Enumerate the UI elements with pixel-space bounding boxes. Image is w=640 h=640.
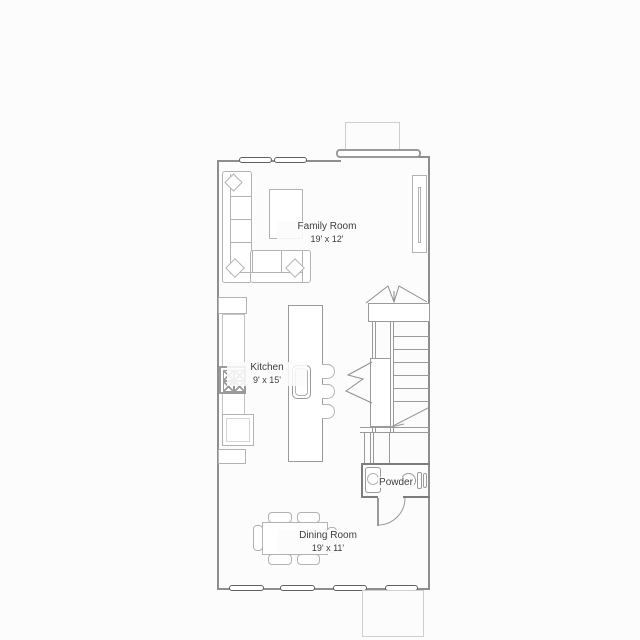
stair-tread: [393, 362, 429, 363]
dining-room-label: Dining Room 19' x 11': [278, 530, 378, 554]
window-bottom-1: [229, 585, 264, 591]
stair-direction-line: [391, 408, 428, 427]
lower-cabinet: [218, 449, 246, 464]
window-right-glass: [418, 187, 421, 243]
stair-bottom-line-1: [360, 427, 429, 428]
powder-wall-bottom-right: [403, 496, 430, 498]
floor-plan-canvas: Family Room 19' x 12' Kitchen 9' x 15' P…: [0, 0, 640, 640]
stair-break-left-icon: [346, 362, 372, 403]
sofa-cushion-line-4: [252, 251, 253, 272]
refrigerator: [218, 297, 247, 314]
window-bottom-2: [280, 585, 315, 591]
hall-line-2: [370, 433, 371, 463]
room-name: Family Room: [277, 221, 377, 233]
powder-wall-top: [361, 463, 430, 465]
chimney-outline: [345, 122, 400, 151]
hall-line-4: [389, 433, 390, 463]
window-top-1: [239, 157, 272, 163]
fireplace-hearth: [336, 149, 421, 158]
sofa-cushion-line-2: [231, 219, 251, 220]
sofa-cushion-line-3: [231, 242, 251, 243]
hall-line-1: [364, 433, 365, 463]
stair-tread: [393, 349, 429, 350]
room-name: Kitchen: [227, 362, 307, 374]
kitchen-label: Kitchen 9' x 15': [227, 362, 307, 386]
stair-tread: [393, 401, 429, 402]
stair-stringer-4: [393, 322, 394, 433]
room-dims: 19' x 12': [277, 233, 377, 245]
stair-tread: [393, 388, 429, 389]
bar-stool-1: [322, 364, 335, 379]
dining-chair-bottom-2: [297, 554, 320, 565]
powder-door-panel: [377, 498, 379, 526]
stair-railing: [370, 358, 391, 427]
door-swing-arc: [378, 498, 405, 525]
room-name: Dining Room: [278, 530, 378, 542]
bar-stool-2: [322, 384, 335, 399]
dining-chair-top-1: [268, 512, 292, 523]
dining-chair-bottom-1: [268, 554, 292, 565]
stair-break-top-icon: [366, 286, 427, 303]
base-cabinet-inner: [226, 418, 250, 442]
bar-stool-3: [322, 404, 335, 419]
wall-right: [428, 156, 430, 590]
porch-stoop: [362, 590, 424, 637]
stair-landing: [368, 303, 430, 322]
sofa-cushion-line-5: [281, 251, 282, 272]
powder-wall-left: [361, 463, 363, 498]
sofa-cushion-line-1: [231, 196, 251, 197]
hall-line-3: [373, 433, 374, 463]
dining-chair-left: [253, 525, 263, 551]
dining-chair-top-2: [297, 512, 320, 523]
window-top-2: [274, 157, 307, 163]
powder-label: Powder: [368, 475, 424, 489]
stair-tread: [393, 375, 429, 376]
stair-tread: [393, 336, 429, 337]
room-dims: 9' x 15': [227, 374, 307, 386]
family-room-label: Family Room 19' x 12': [277, 221, 377, 245]
room-name: Powder: [378, 477, 414, 488]
powder-wall-bottom-left: [361, 496, 378, 498]
room-dims: 19' x 11': [278, 542, 378, 554]
